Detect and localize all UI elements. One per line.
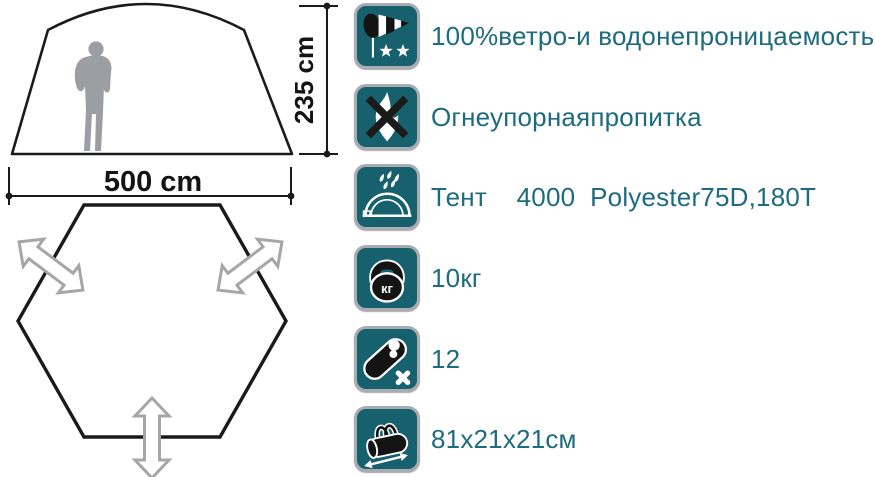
width-dimension-label: 500 cm <box>104 166 202 198</box>
tent-spec-sheet: 235 cm 500 cm <box>0 0 875 477</box>
sleeping-bag-icon <box>354 326 420 392</box>
spec-row-weight: кг 10кг <box>354 245 482 311</box>
weight-icon: кг <box>354 245 420 311</box>
windsock-icon <box>354 3 420 69</box>
spec-label-capacity: 12 <box>431 344 460 375</box>
dim-endpoint <box>288 193 295 200</box>
dim-endpoint <box>324 151 331 158</box>
tent-rain-icon <box>354 164 420 230</box>
spec-row-packed-size: 81x21x21см <box>354 406 577 472</box>
height-dimension-label: 235 cm <box>289 36 319 124</box>
dim-endpoint <box>324 3 331 10</box>
dim-endpoint <box>6 193 13 200</box>
spec-row-capacity: 12 <box>354 326 460 392</box>
tent-diagrams: 235 cm 500 cm <box>0 0 350 477</box>
spec-row-windproof: 100%ветро-и водонепроницаемость <box>354 3 874 69</box>
spec-label-packed-size: 81x21x21см <box>431 424 577 455</box>
spec-label-fabric: Тент 4000 Polyester75D,180T <box>431 182 816 213</box>
carry-bag-icon <box>354 406 420 472</box>
spec-label-weight: 10кг <box>431 263 482 294</box>
spec-row-fireproof: Огнеупорнаяпропитка <box>354 84 702 150</box>
tent-side-view <box>12 4 292 154</box>
spec-list: 100%ветро-и водонепроницаемость Огнеупор… <box>354 0 875 477</box>
spec-row-fabric: Тент 4000 Polyester75D,180T <box>354 164 816 230</box>
no-fire-icon <box>354 84 420 150</box>
tent-diagram-svg: 235 cm 500 cm <box>0 0 350 477</box>
spec-label-windproof: 100%ветро-и водонепроницаемость <box>431 21 874 52</box>
spec-label-fireproof: Огнеупорнаяпропитка <box>431 102 702 133</box>
weight-icon-text: кг <box>381 281 394 296</box>
